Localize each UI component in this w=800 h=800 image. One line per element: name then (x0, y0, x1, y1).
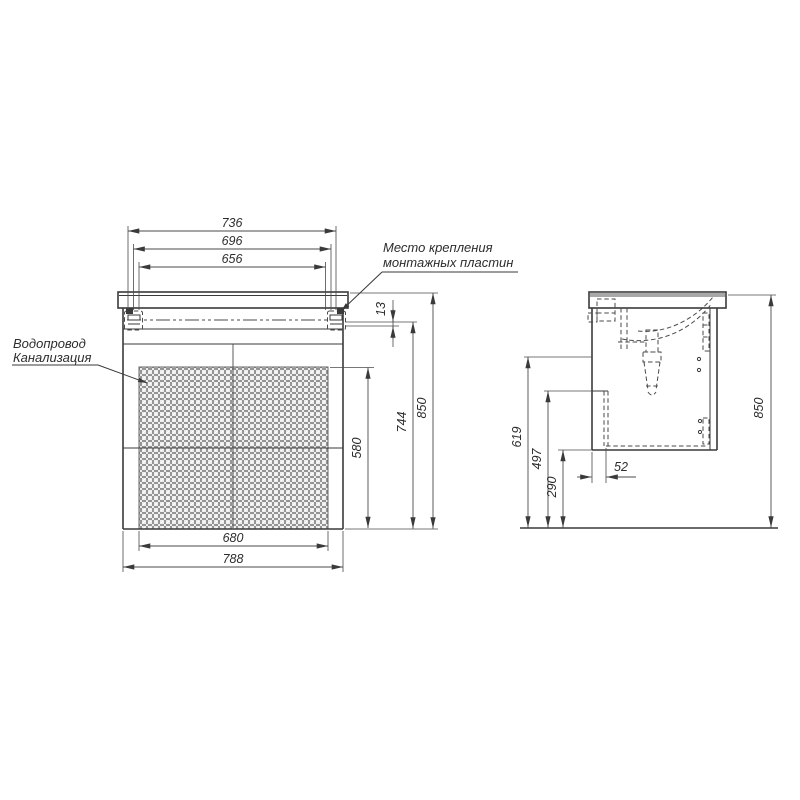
dim-side-850: 850 (752, 398, 766, 419)
dim-front-736: 736 (222, 216, 243, 230)
side-dimensions: 619 497 290 52 850 (510, 295, 776, 528)
dim-side-619: 619 (510, 427, 524, 448)
dim-front-850: 850 (415, 398, 429, 419)
plumbing-label-line2: Канализация (13, 350, 91, 365)
dim-front-744: 744 (395, 412, 409, 433)
technical-drawing-page: 736 696 656 13 580 744 850 680 788 (0, 0, 800, 800)
front-view (118, 292, 348, 529)
label-plumbing: Водопровод Канализация (12, 336, 147, 383)
dim-front-13: 13 (374, 302, 388, 316)
vanity-installation-drawing: 736 696 656 13 580 744 850 680 788 (0, 0, 800, 800)
side-cabinet-body (592, 308, 717, 450)
plumbing-label-line1: Водопровод (13, 336, 86, 351)
dim-front-696: 696 (222, 234, 243, 248)
dim-side-497: 497 (530, 448, 544, 470)
sink-bowl-hidden (618, 297, 713, 350)
front-mounting-rail (123, 308, 343, 329)
mounting-label-line2: монтажных пластин (383, 255, 513, 270)
dim-front-788: 788 (223, 552, 244, 566)
mounting-label-line1: Место крепления (383, 240, 493, 255)
label-mounting-plates: Место крепления монтажных пластин (341, 240, 518, 311)
hinge-hidden (697, 313, 709, 444)
dim-front-580: 580 (350, 438, 364, 459)
front-countertop (118, 292, 348, 308)
dim-side-52: 52 (614, 460, 628, 474)
dim-side-290: 290 (545, 477, 559, 499)
dim-front-656: 656 (222, 252, 243, 266)
mounting-bracket-left (125, 308, 143, 330)
dim-front-680: 680 (223, 531, 244, 545)
